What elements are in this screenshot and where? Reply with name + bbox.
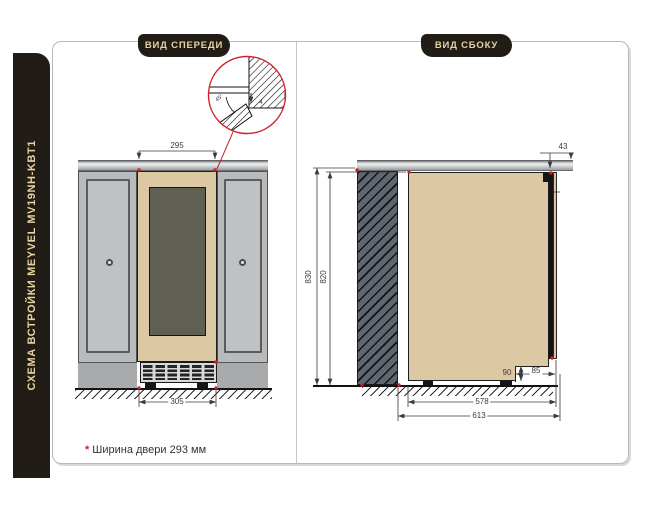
front-view-badge: ВИД СПЕРЕДИ — [138, 34, 230, 57]
red-markers — [137, 168, 553, 389]
dimension-overlay — [0, 0, 661, 505]
dim-niche-width: 295 — [170, 142, 183, 150]
dim-niche-height: 830 — [305, 270, 313, 283]
detail-callout — [205, 52, 286, 169]
sidebar-title: СХЕМА ВСТРОЙКИ MEYVEL MV19NH-KBT1 — [26, 140, 38, 391]
front-dimensions — [139, 151, 216, 407]
dim-unit-height: 820 — [320, 270, 328, 283]
detail-gap-label: 4 — [259, 100, 262, 106]
dim-depth-no-door: 578 — [473, 398, 490, 406]
footnote-asterisk: * — [85, 444, 89, 456]
footnote-text: Ширина двери 293 мм — [92, 444, 206, 456]
dim-depth-total: 613 — [470, 412, 487, 420]
installation-scheme-page: 295 305 830 820 43 578 613 90 85 45° 4 В… — [0, 0, 661, 505]
side-view-badge: ВИД СБОКУ — [421, 34, 512, 57]
footnote: * Ширина двери 293 мм — [85, 444, 206, 456]
dim-vent-width: 305 — [168, 398, 185, 406]
front-view-badge-label: ВИД СПЕРЕДИ — [145, 40, 223, 51]
sidebar: СХЕМА ВСТРОЙКИ MEYVEL MV19NH-KBT1 — [13, 53, 50, 478]
side-view-badge-label: ВИД СБОКУ — [435, 40, 498, 51]
dim-top-offset: 43 — [559, 143, 568, 151]
side-dimensions — [313, 153, 574, 421]
dim-plinth-height: 90 — [503, 369, 512, 377]
dim-plinth-depth: 85 — [530, 367, 543, 375]
